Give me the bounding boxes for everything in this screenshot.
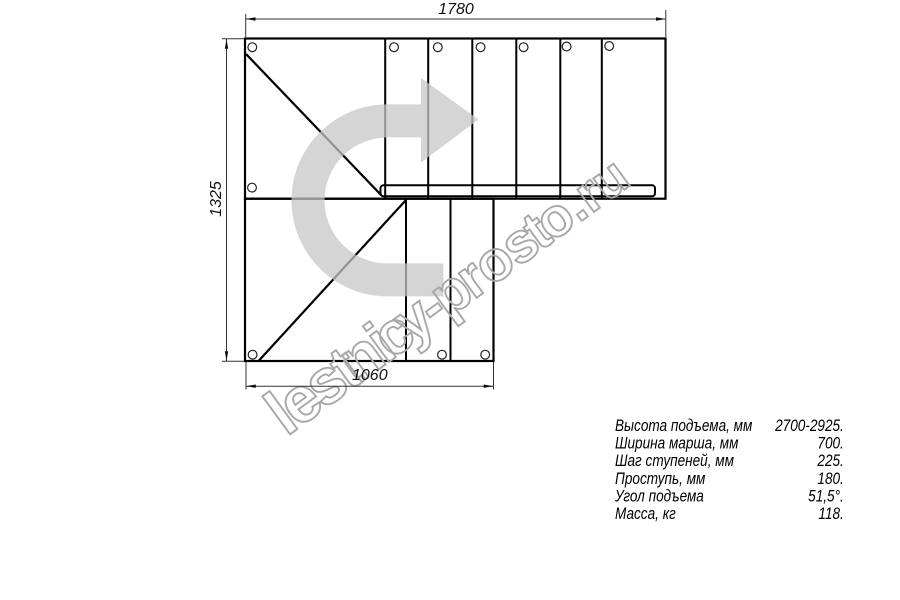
svg-text:1060: 1060 — [352, 367, 388, 384]
svg-text:1780: 1780 — [438, 1, 474, 18]
svg-text:Высота подъема, мм: Высота подъема, мм — [615, 417, 753, 436]
svg-text:700.: 700. — [817, 434, 843, 453]
svg-text:51,5°.: 51,5°. — [808, 487, 844, 506]
svg-text:Шаг ступеней, мм: Шаг ступеней, мм — [615, 452, 734, 471]
svg-text:Ширина марша, мм: Ширина марша, мм — [615, 434, 739, 453]
svg-text:180.: 180. — [817, 469, 843, 488]
svg-text:Угол подъема: Угол подъема — [614, 487, 704, 506]
svg-text:2700-2925.: 2700-2925. — [774, 417, 844, 436]
svg-text:Проступь, мм: Проступь, мм — [615, 469, 706, 488]
svg-text:225.: 225. — [817, 452, 844, 471]
svg-text:1325: 1325 — [208, 181, 225, 217]
svg-text:Масса, кг: Масса, кг — [615, 505, 676, 524]
svg-text:118.: 118. — [818, 505, 843, 524]
